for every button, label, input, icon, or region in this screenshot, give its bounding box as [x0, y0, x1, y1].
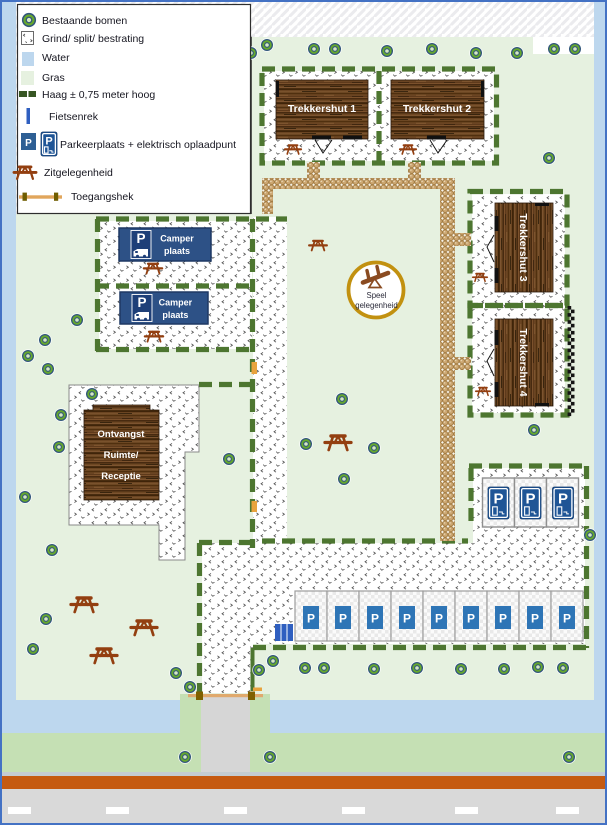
svg-text:Zitgelegenheid: Zitgelegenheid [44, 167, 113, 179]
svg-text:Trekkershut 4: Trekkershut 4 [517, 328, 529, 396]
svg-text:Trekkershut 1: Trekkershut 1 [288, 103, 356, 115]
svg-text:Bestaande bomen: Bestaande bomen [42, 15, 127, 27]
svg-text:P: P [467, 612, 475, 626]
svg-text:Haag ± 0,75 meter hoog: Haag ± 0,75 meter hoog [42, 89, 155, 101]
svg-text:Parkeerplaats + elektrisch opl: Parkeerplaats + elektrisch oplaadpunt [60, 139, 236, 151]
svg-text:P: P [499, 612, 507, 626]
svg-text:Trekkershut 3: Trekkershut 3 [517, 213, 529, 281]
svg-text:P: P [307, 612, 315, 626]
svg-text:P: P [563, 612, 571, 626]
svg-text:plaats: plaats [162, 310, 188, 320]
svg-text:Ruimte/: Ruimte/ [104, 450, 139, 461]
svg-text:Toegangshek: Toegangshek [71, 191, 134, 203]
svg-text:P: P [339, 612, 347, 626]
svg-text:P: P [45, 135, 52, 147]
svg-text:P: P [558, 491, 568, 508]
svg-text:P: P [403, 612, 411, 626]
svg-text:P: P [493, 491, 503, 508]
svg-text:gelegenheid: gelegenheid [355, 301, 398, 310]
svg-text:Trekkershut 2: Trekkershut 2 [403, 103, 471, 115]
svg-text:P: P [25, 138, 32, 149]
svg-text:Water: Water [42, 52, 70, 64]
svg-text:P: P [371, 612, 379, 626]
svg-text:Grind/ split/ bestrating: Grind/ split/ bestrating [42, 33, 144, 45]
svg-text:P: P [525, 491, 535, 508]
svg-text:Receptie: Receptie [101, 471, 141, 482]
svg-text:P: P [531, 612, 539, 626]
svg-text:Camper: Camper [159, 298, 193, 308]
svg-text:Gras: Gras [42, 72, 65, 84]
svg-text:P: P [136, 231, 145, 246]
svg-text:P: P [137, 295, 146, 310]
svg-text:Fietsenrek: Fietsenrek [49, 111, 99, 123]
svg-text:Camper: Camper [160, 234, 194, 244]
svg-text:plaats: plaats [164, 246, 190, 256]
svg-text:Ontvangst: Ontvangst [98, 429, 146, 440]
svg-text:Speel: Speel [367, 291, 387, 300]
svg-text:P: P [435, 612, 443, 626]
